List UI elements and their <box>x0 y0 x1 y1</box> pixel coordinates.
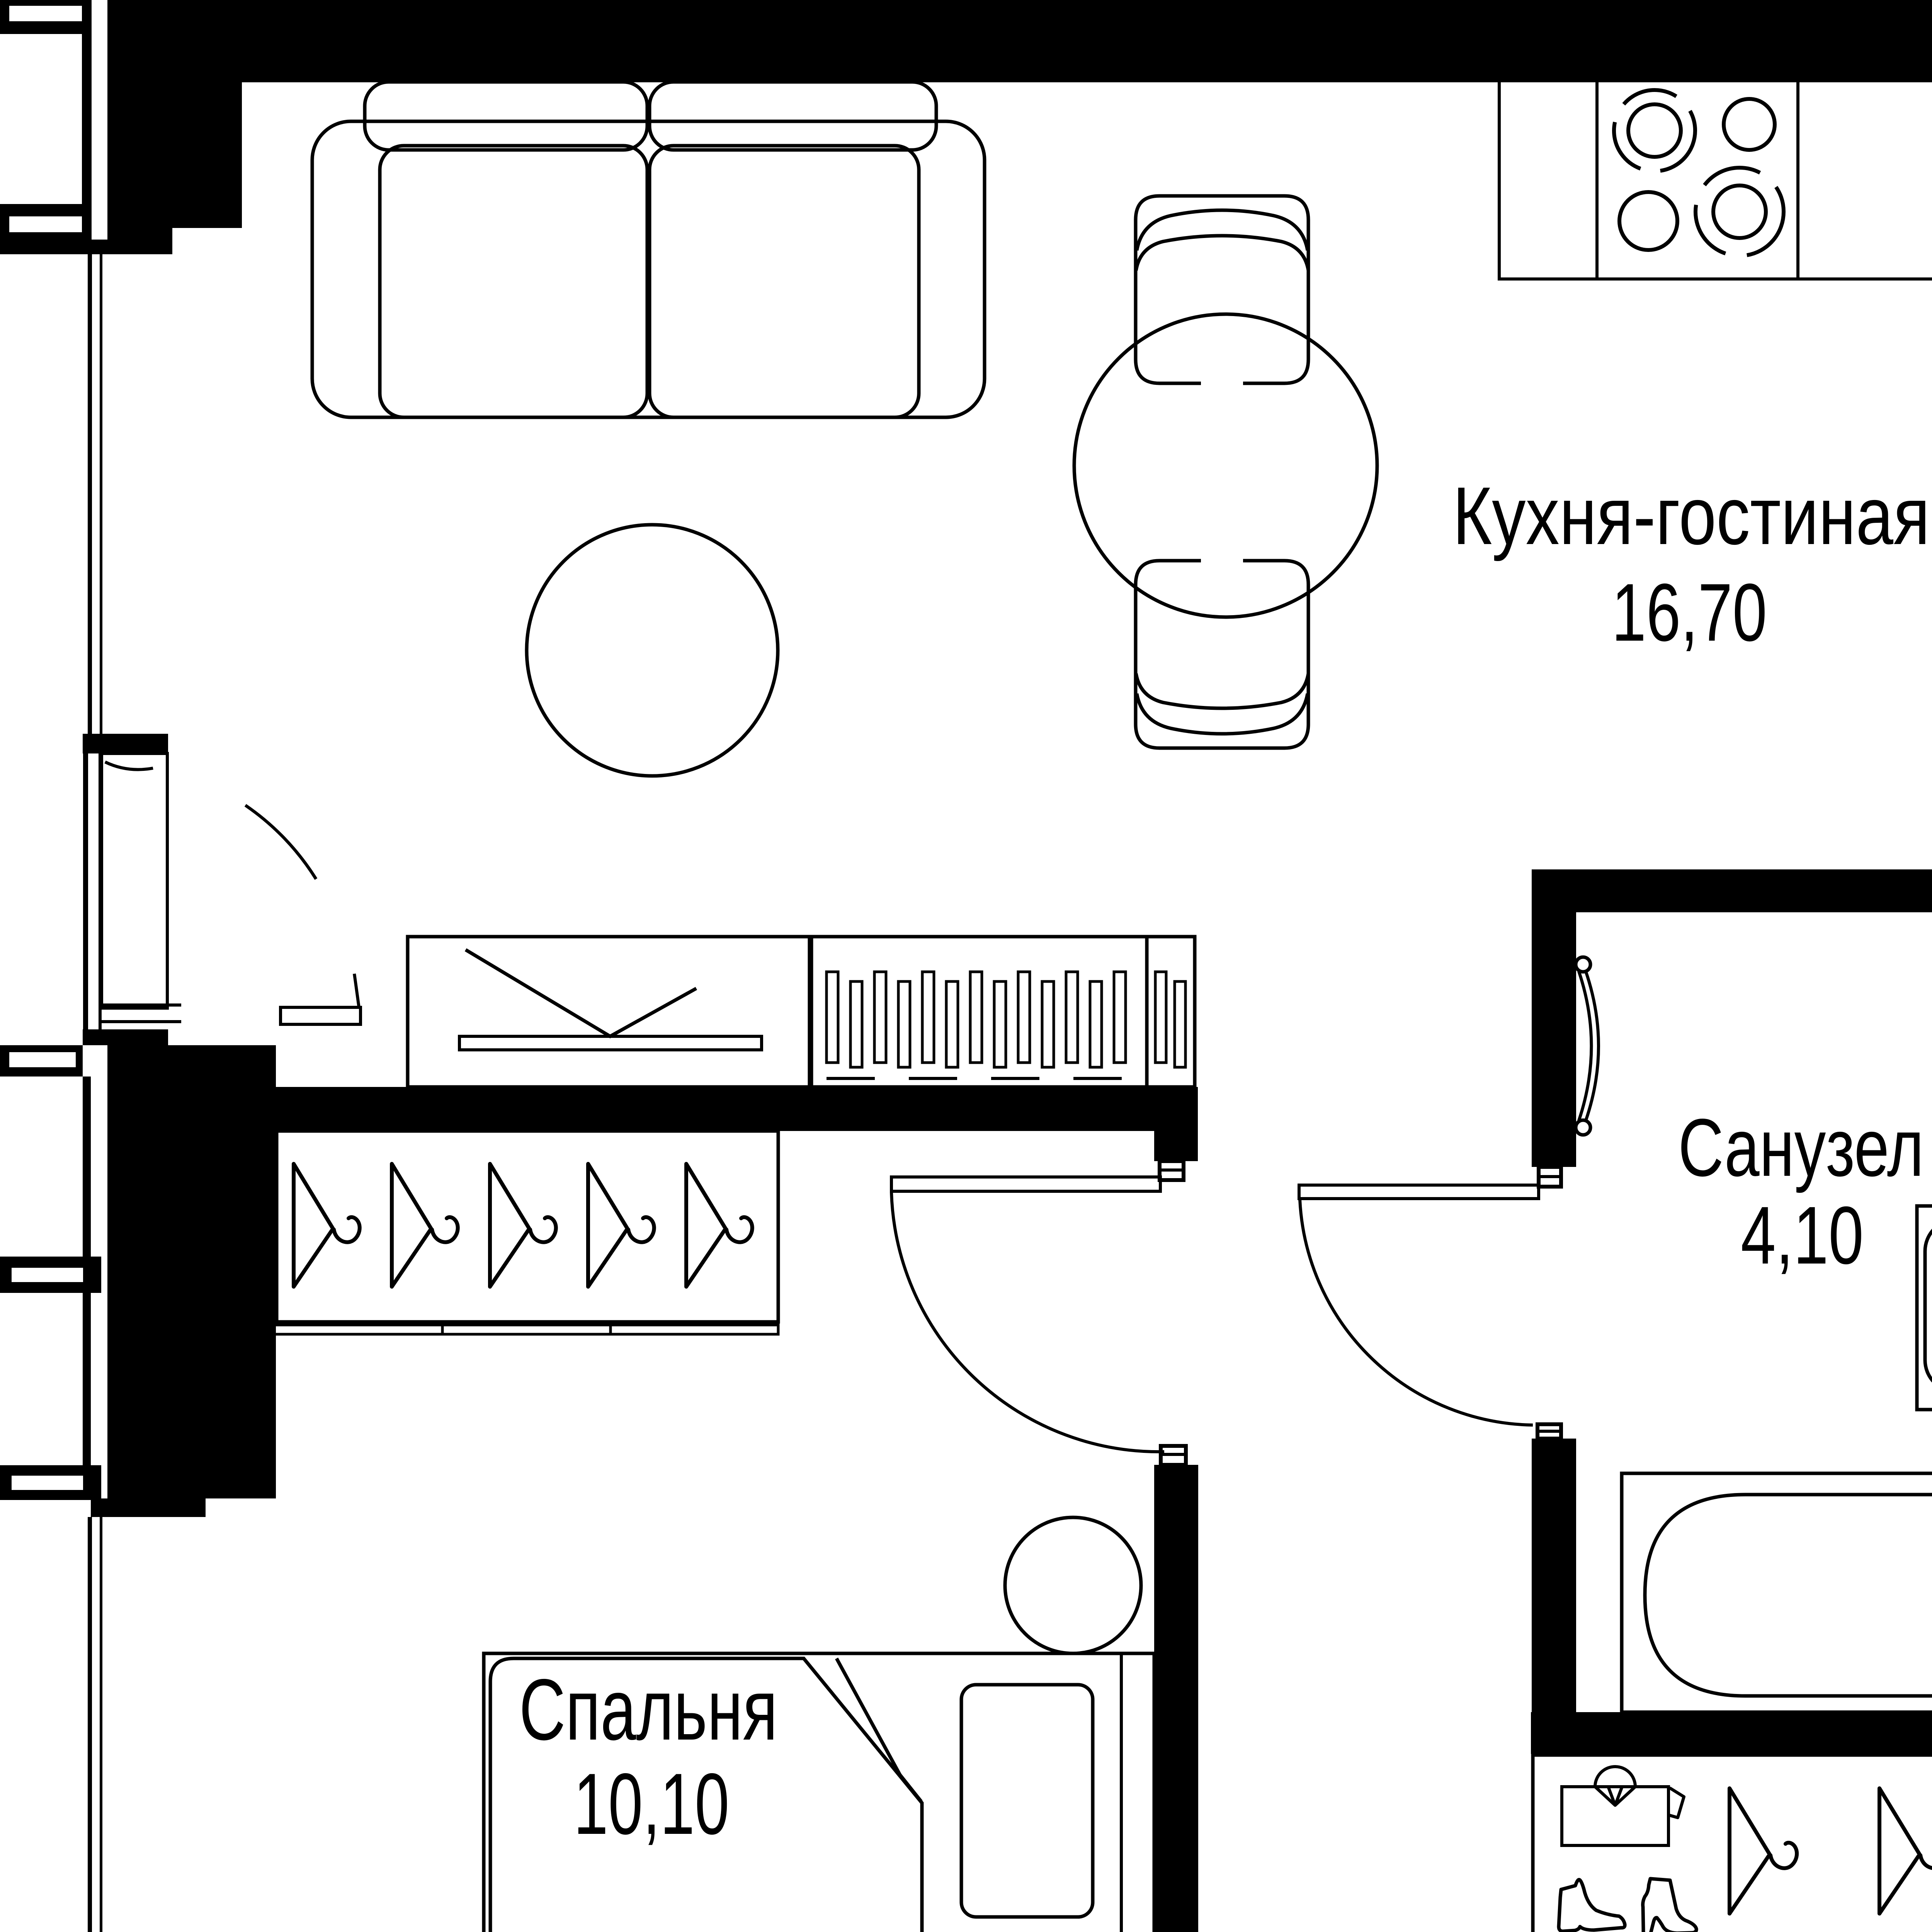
svg-text:Спальня: Спальня <box>519 1661 778 1758</box>
svg-text:Кухня-гостиная: Кухня-гостиная <box>1453 470 1930 561</box>
svg-text:16,70: 16,70 <box>1612 566 1767 658</box>
svg-text:10,10: 10,10 <box>574 1755 730 1852</box>
svg-text:Санузел: Санузел <box>1678 1102 1924 1193</box>
svg-text:4,10: 4,10 <box>1741 1189 1864 1281</box>
